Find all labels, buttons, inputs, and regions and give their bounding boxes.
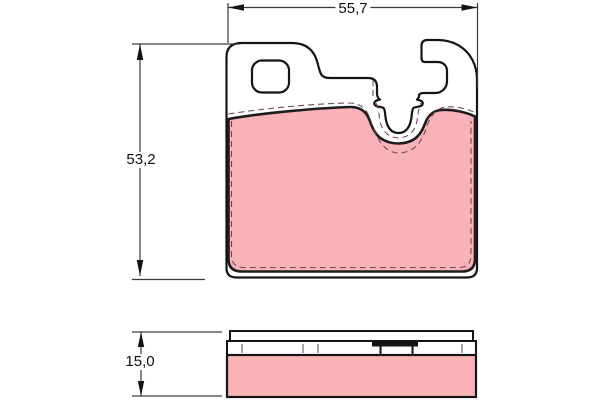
arrowhead-left-icon xyxy=(228,4,244,11)
drawing-area xyxy=(0,0,600,400)
arrowhead-up-icon xyxy=(137,44,144,60)
pad-side-view xyxy=(227,331,476,397)
pad-ear-hole xyxy=(252,61,289,93)
arrowhead-up-icon xyxy=(138,332,144,347)
friction-material-front xyxy=(229,107,476,272)
shim-clip-bar xyxy=(372,342,418,347)
arrowhead-down-icon xyxy=(137,260,144,276)
height-dimension-label: 53,2 xyxy=(123,152,158,168)
arrowhead-down-icon xyxy=(138,381,144,396)
brake-pad-technical-drawing: 55,7 53,2 15,0 xyxy=(0,0,600,400)
arrowhead-right-icon xyxy=(462,4,478,11)
width-dimension-label: 55,7 xyxy=(335,1,370,17)
side-backplate-top xyxy=(230,331,473,341)
friction-material-side xyxy=(227,355,476,397)
pad-front-view xyxy=(227,40,478,278)
thickness-dimension-label: 15,0 xyxy=(122,354,157,370)
side-backplate-body xyxy=(227,341,476,355)
